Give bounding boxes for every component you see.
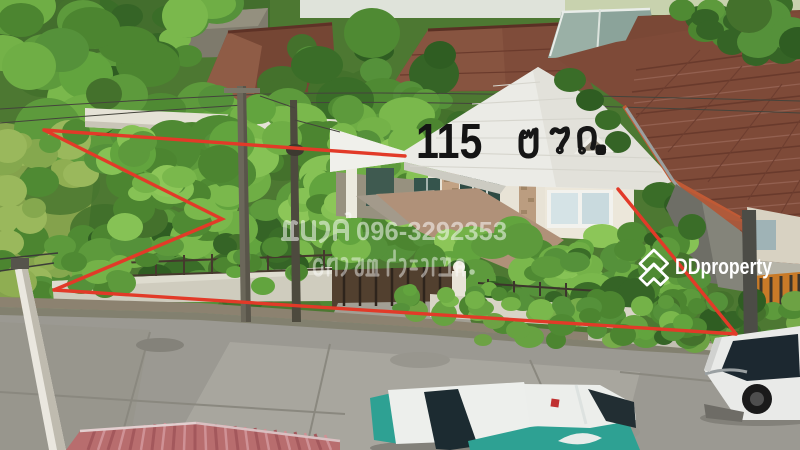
- svg-text:096-3292353: 096-3292353: [356, 218, 507, 246]
- svg-text:DDproperty: DDproperty: [675, 254, 772, 279]
- svg-text:115: 115: [416, 114, 482, 169]
